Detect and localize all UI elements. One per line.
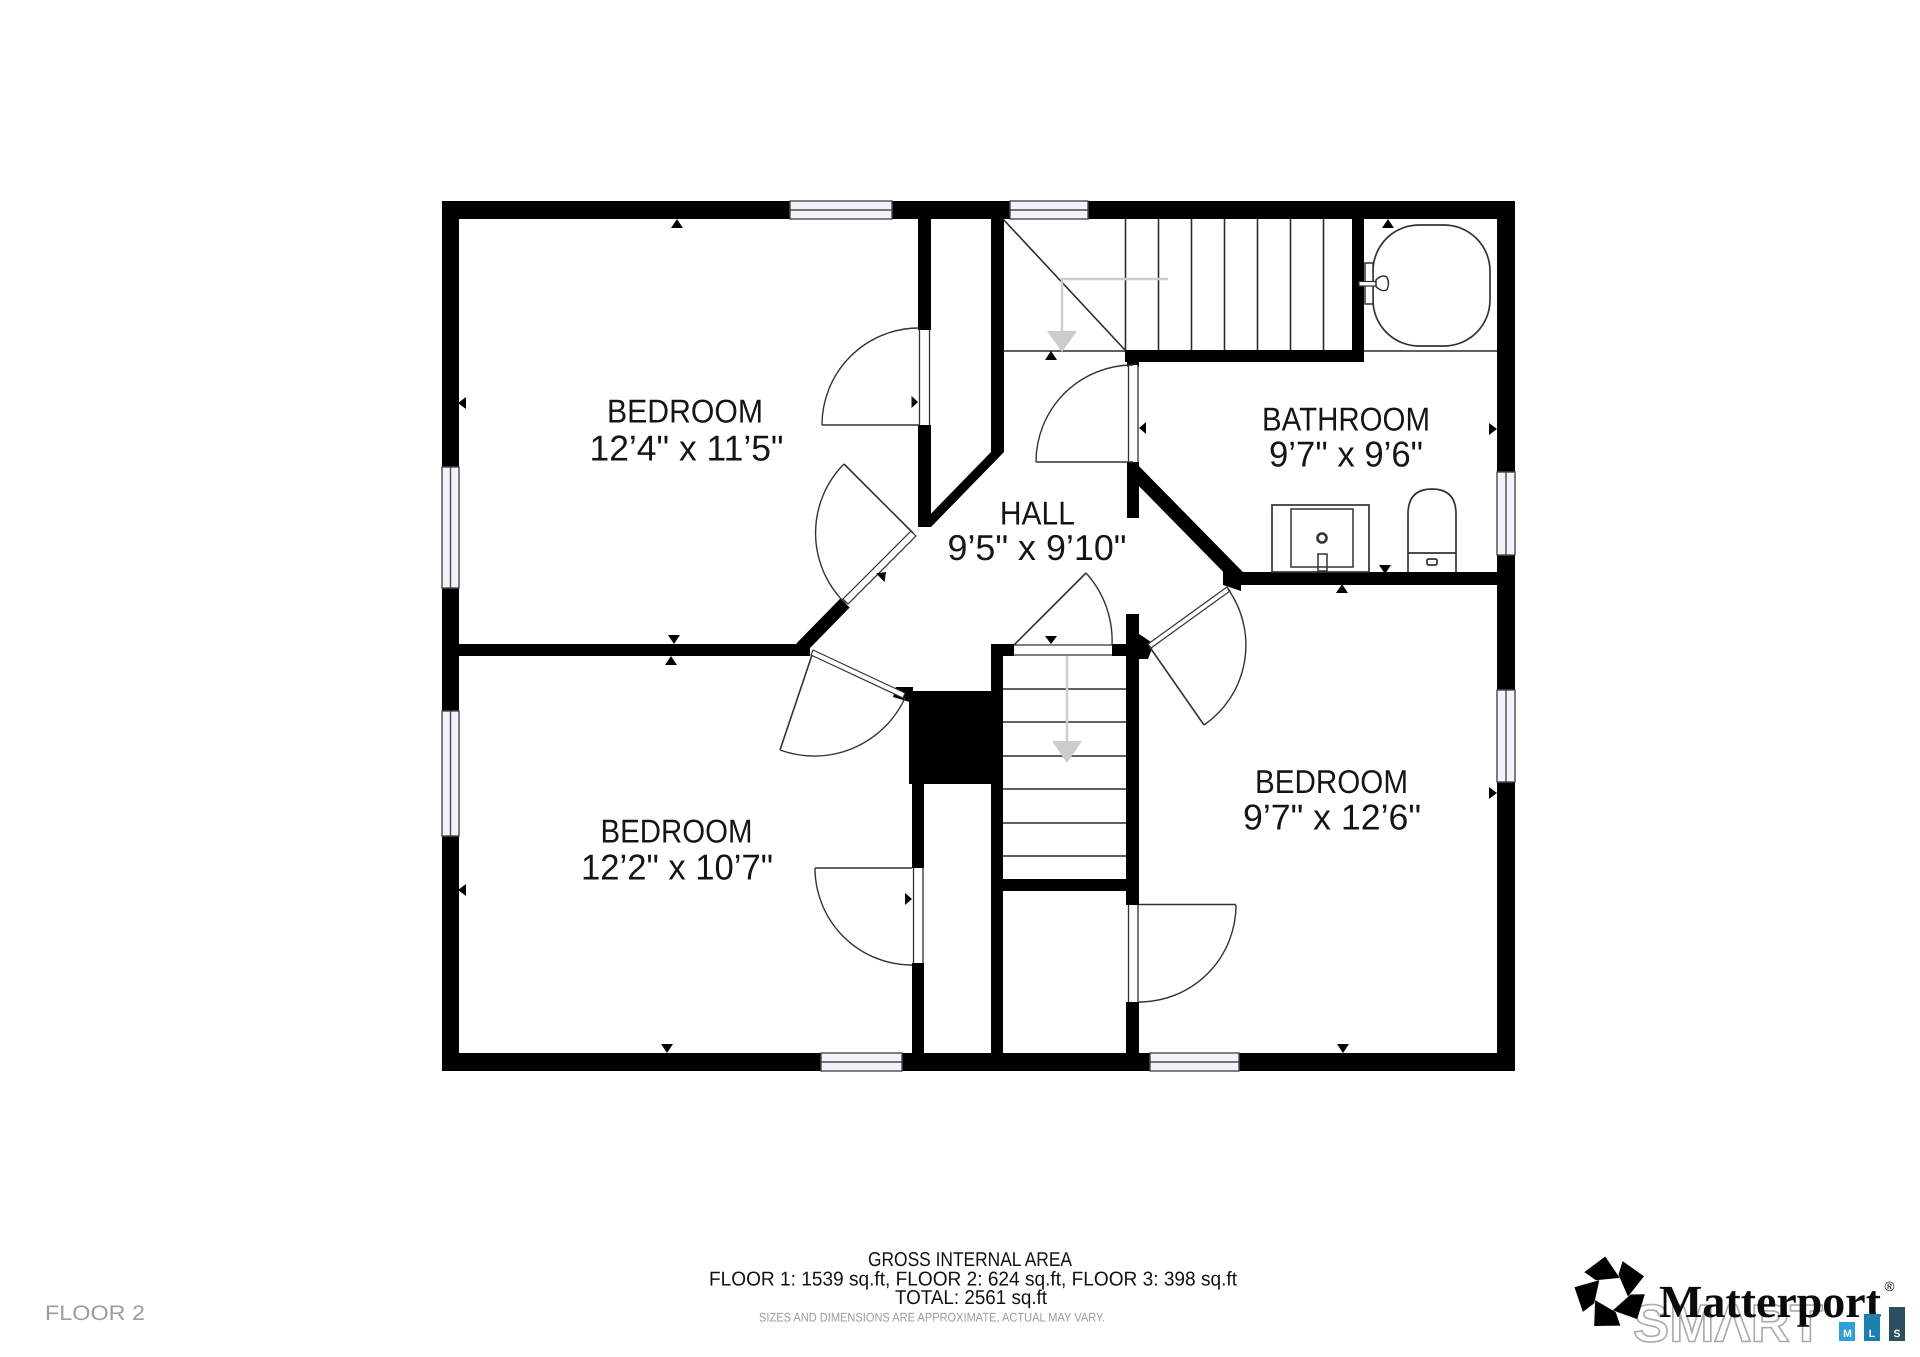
svg-text:BEDROOM: BEDROOM: [1255, 763, 1408, 800]
svg-text:9’5" x 9’10": 9’5" x 9’10": [948, 527, 1127, 568]
svg-text:TOTAL: 2561 sq.ft: TOTAL: 2561 sq.ft: [895, 1287, 1047, 1309]
svg-text:BEDROOM: BEDROOM: [607, 393, 763, 430]
svg-text:®: ®: [1885, 1279, 1895, 1294]
svg-text:BEDROOM: BEDROOM: [601, 813, 753, 850]
svg-text:12’4" x 11’5": 12’4" x 11’5": [590, 428, 784, 469]
svg-text:9’7" x 12’6": 9’7" x 12’6": [1243, 797, 1421, 838]
svg-text:FLOOR 2: FLOOR 2: [45, 1302, 145, 1325]
svg-text:Matterport: Matterport: [1659, 1276, 1882, 1327]
svg-text:L: L: [1869, 1328, 1876, 1340]
svg-text:HALL: HALL: [1000, 494, 1075, 531]
svg-text:S: S: [1893, 1328, 1900, 1340]
svg-text:12’2" x 10’7": 12’2" x 10’7": [581, 847, 773, 888]
svg-text:SIZES AND DIMENSIONS ARE APPRO: SIZES AND DIMENSIONS ARE APPROXIMATE, AC…: [759, 1311, 1105, 1325]
svg-text:9’7" x 9’6": 9’7" x 9’6": [1269, 434, 1423, 475]
svg-text:M: M: [1843, 1328, 1852, 1340]
svg-text:BATHROOM: BATHROOM: [1262, 401, 1430, 438]
